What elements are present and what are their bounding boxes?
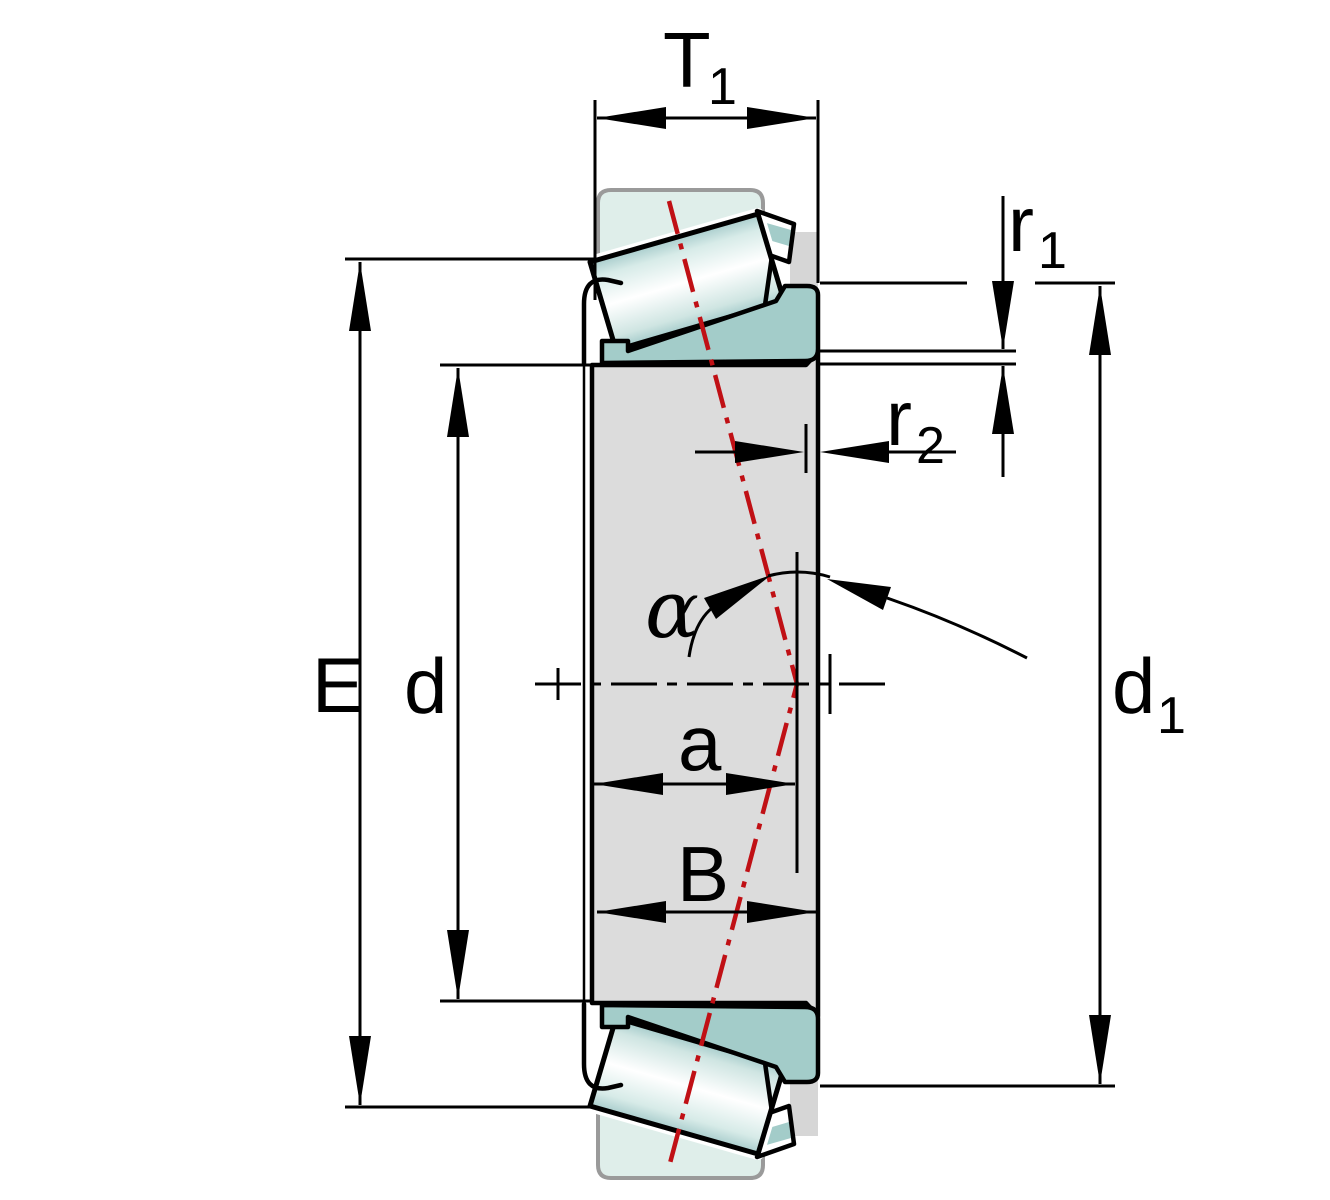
angle-leader-right [887,598,1027,658]
diagram-canvas: T1 E d d1 r1 [0,0,1330,1200]
dim-label-r2: r2 [886,374,945,475]
bearing-dimension-diagram: T1 E d d1 r1 [0,0,1330,1200]
arrow-up [1089,286,1111,355]
arrow-left [597,107,666,129]
angle-arrow-right [827,579,891,610]
arrow-down [1089,1015,1111,1084]
cage-section [790,232,818,289]
dim-label-d: d [404,642,447,730]
arrow-right [747,107,816,129]
dim-label-d1: d1 [1112,642,1186,745]
dim-label-alpha: α [645,563,699,656]
arrow-left [820,441,889,463]
arrow-up [992,366,1014,434]
bearing-lower-half [584,1004,818,1178]
bearing-upper-half [584,190,818,364]
dim-label-E: E [312,641,364,729]
dim-label-a: a [678,699,722,787]
dim-label-r1: r1 [1008,180,1067,280]
dim-label-T1: T1 [663,16,737,116]
arrow-down [447,930,469,999]
arrow-up [447,368,469,437]
arrow-up [349,262,371,331]
arrow-down [992,281,1014,349]
arrow-down [349,1036,371,1105]
dim-label-B: B [677,830,729,918]
